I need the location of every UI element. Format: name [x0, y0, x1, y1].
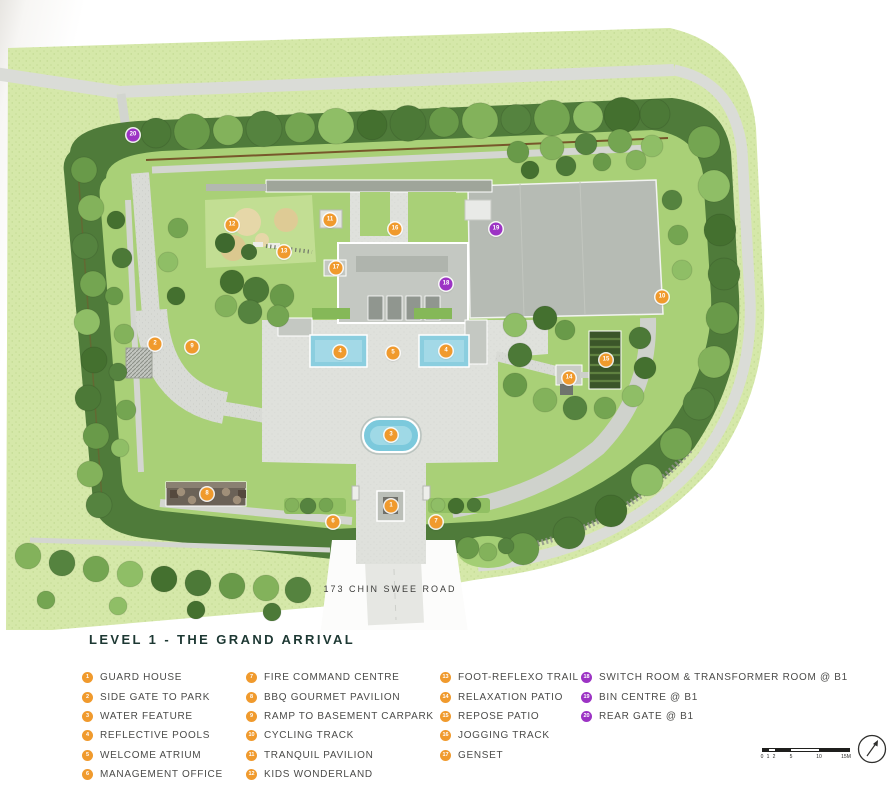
legend-marker: 9: [246, 711, 257, 722]
legend-marker: 17: [440, 750, 451, 761]
legend-marker: 4: [82, 730, 93, 741]
map-marker-17: 17: [330, 262, 343, 275]
legend-item-label: CYCLING TRACK: [264, 730, 354, 741]
legend-marker: 1: [82, 672, 93, 683]
map-marker-16: 16: [389, 223, 402, 236]
legend-item: 15REPOSE PATIO: [440, 707, 579, 726]
scale-tick: 2: [773, 754, 776, 760]
legend-item-label: REPOSE PATIO: [458, 711, 539, 722]
map-marker-7: 7: [430, 516, 443, 529]
road-label: 173 CHIN SWEE ROAD: [300, 584, 480, 594]
legend-item: 16JOGGING TRACK: [440, 726, 579, 745]
legend-item: 2SIDE GATE TO PARK: [82, 687, 223, 706]
legend-marker: 20: [581, 711, 592, 722]
legend-marker: 12: [246, 769, 257, 780]
legend-item-label: RAMP TO BASEMENT CARPARK: [264, 711, 434, 722]
north-arrow-icon: [856, 733, 888, 765]
legend-marker: 14: [440, 692, 451, 703]
map-marker-20: 20: [127, 129, 140, 142]
legend-item: 6MANAGEMENT OFFICE: [82, 765, 223, 784]
legend-marker: 19: [581, 692, 592, 703]
scale-tick: 5: [790, 754, 793, 760]
legend-item: 1GUARD HOUSE: [82, 668, 223, 687]
legend-item: 13FOOT-REFLEXO TRAIL: [440, 668, 579, 687]
legend-item: 8BBQ GOURMET PAVILION: [246, 687, 434, 706]
scale-tick: 10: [816, 754, 822, 760]
map-marker-5: 5: [387, 347, 400, 360]
legend-marker: 16: [440, 730, 451, 741]
map-marker-18: 18: [440, 278, 453, 291]
scale-bar: 0 1 2 5 10 15M: [762, 748, 850, 762]
legend-item-label: BBQ GOURMET PAVILION: [264, 692, 400, 703]
map-marker-1: 1: [385, 500, 398, 513]
legend-marker: 7: [246, 672, 257, 683]
map-marker-layer: 12344567891011121314151617181920: [0, 0, 896, 630]
map-marker-11: 11: [324, 214, 337, 227]
legend-marker: 15: [440, 711, 451, 722]
map-marker-4: 4: [334, 346, 347, 359]
legend-item-label: GUARD HOUSE: [100, 672, 182, 683]
scale-tick: 1: [767, 754, 770, 760]
scale-tick: 0: [761, 754, 764, 760]
map-marker-19: 19: [490, 223, 503, 236]
legend-item-label: MANAGEMENT OFFICE: [100, 769, 223, 780]
legend-item: 12KIDS WONDERLAND: [246, 765, 434, 784]
map-marker-10: 10: [656, 291, 669, 304]
legend-item-label: WATER FEATURE: [100, 711, 193, 722]
page-title: LEVEL 1 - THE GRAND ARRIVAL: [89, 632, 355, 647]
legend-marker: 3: [82, 711, 93, 722]
legend-item-label: RELAXATION PATIO: [458, 692, 563, 703]
map-marker-15: 15: [600, 354, 613, 367]
legend-item: 17GENSET: [440, 746, 579, 765]
legend-item: 9RAMP TO BASEMENT CARPARK: [246, 707, 434, 726]
legend-item: 18SWITCH ROOM & TRANSFORMER ROOM @ B1: [581, 668, 848, 687]
map-marker-8: 8: [201, 488, 214, 501]
legend-item-label: WELCOME ATRIUM: [100, 750, 201, 761]
legend-marker: 8: [246, 692, 257, 703]
scale-tick: 15M: [841, 754, 851, 760]
legend-item-label: JOGGING TRACK: [458, 730, 550, 741]
map-marker-2: 2: [149, 338, 162, 351]
legend-item-label: GENSET: [458, 750, 503, 761]
legend-item: 4REFLECTIVE POOLS: [82, 726, 223, 745]
legend-item-label: FOOT-REFLEXO TRAIL: [458, 672, 579, 683]
legend-item-label: FIRE COMMAND CENTRE: [264, 672, 400, 683]
legend-item-label: REAR GATE @ B1: [599, 711, 694, 722]
legend-item-label: SWITCH ROOM & TRANSFORMER ROOM @ B1: [599, 672, 848, 683]
legend-item: 19BIN CENTRE @ B1: [581, 687, 848, 706]
legend-marker: 10: [246, 730, 257, 741]
scale-bar-segments: [762, 748, 850, 752]
legend-item: 11TRANQUIL PAVILION: [246, 746, 434, 765]
map-marker-12: 12: [226, 219, 239, 232]
map-marker-14: 14: [563, 372, 576, 385]
legend-item: 10CYCLING TRACK: [246, 726, 434, 745]
legend-column-1: 1GUARD HOUSE 2SIDE GATE TO PARK 3WATER F…: [82, 668, 223, 784]
legend-item-label: REFLECTIVE POOLS: [100, 730, 210, 741]
map-marker-13: 13: [278, 246, 291, 259]
legend-column-3: 13FOOT-REFLEXO TRAIL 14RELAXATION PATIO …: [440, 668, 579, 765]
map-marker-4: 4: [440, 345, 453, 358]
legend-item: 3WATER FEATURE: [82, 707, 223, 726]
legend-item: 5WELCOME ATRIUM: [82, 746, 223, 765]
legend-item: 7FIRE COMMAND CENTRE: [246, 668, 434, 687]
legend-marker: 18: [581, 672, 592, 683]
legend-marker: 6: [82, 769, 93, 780]
legend-marker: 11: [246, 750, 257, 761]
legend-column-4: 18SWITCH ROOM & TRANSFORMER ROOM @ B1 19…: [581, 668, 848, 726]
legend-column-2: 7FIRE COMMAND CENTRE 8BBQ GOURMET PAVILI…: [246, 668, 434, 784]
map-marker-6: 6: [327, 516, 340, 529]
legend-marker: 5: [82, 750, 93, 761]
legend-marker: 2: [82, 692, 93, 703]
legend-item-label: SIDE GATE TO PARK: [100, 692, 210, 703]
legend-item: 20REAR GATE @ B1: [581, 707, 848, 726]
legend-item-label: TRANQUIL PAVILION: [264, 750, 374, 761]
north-arrow-compass: [856, 733, 888, 765]
legend-item-label: KIDS WONDERLAND: [264, 769, 373, 780]
map-marker-9: 9: [186, 341, 199, 354]
site-plan-page: 12344567891011121314151617181920 LEVEL 1…: [0, 0, 896, 788]
legend-marker: 13: [440, 672, 451, 683]
legend-item: 14RELAXATION PATIO: [440, 687, 579, 706]
legend-item-label: BIN CENTRE @ B1: [599, 692, 698, 703]
map-marker-3: 3: [385, 429, 398, 442]
